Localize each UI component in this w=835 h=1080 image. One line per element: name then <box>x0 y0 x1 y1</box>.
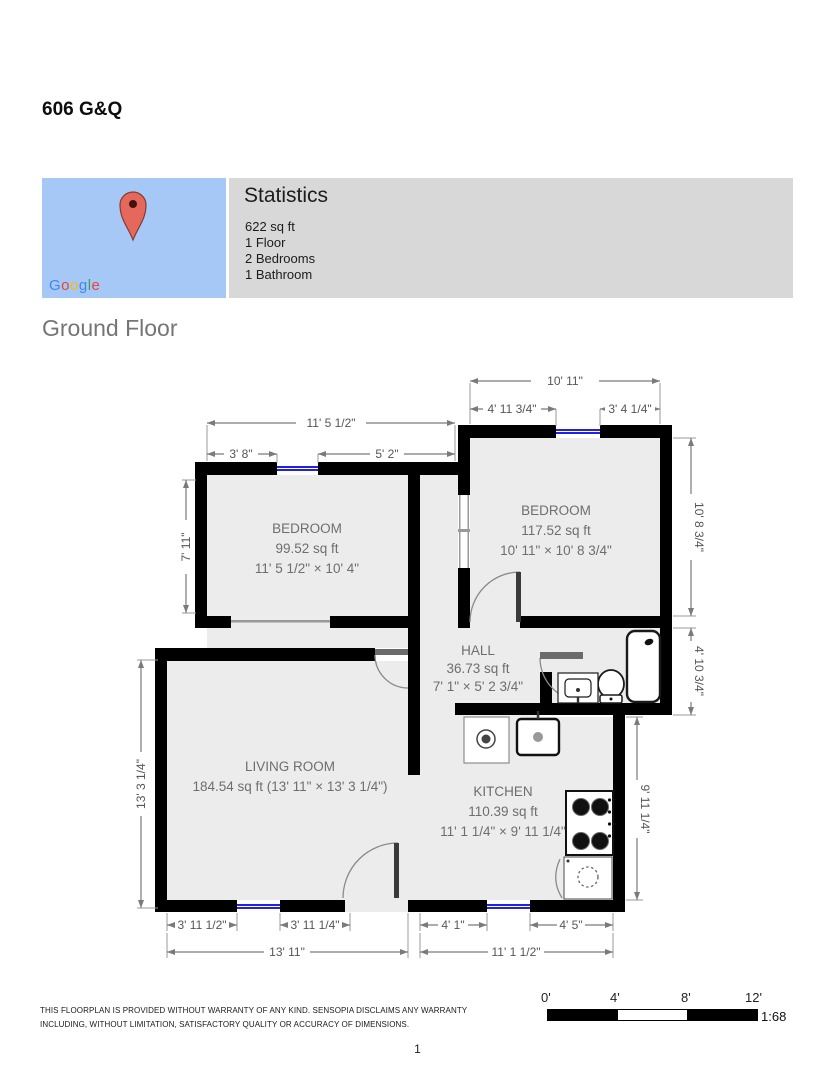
page-title: 606 G&Q <box>42 99 122 121</box>
room-label-kitchen-dims: 11' 1 1/4" × 9' 11 1/4" <box>440 824 566 839</box>
entrance-door-leaf <box>394 843 399 898</box>
room-label-living-name: LIVING ROOM <box>245 759 335 774</box>
room-label-hall-area: 36.73 sq ft <box>446 661 509 676</box>
dim-rb-height: 10' 8 3/4" <box>692 502 706 552</box>
dim-living-bottom-right: 3' 11 1/4" <box>290 918 339 932</box>
dim-living-width: 13' 11" <box>269 945 305 959</box>
floor-heading: Ground Floor <box>42 315 178 342</box>
google-letter: e <box>92 277 101 294</box>
room-label-bedroom-left-dims: 11' 5 1/2" × 10' 4" <box>255 561 359 576</box>
wall-segment <box>613 715 625 912</box>
wall-segment <box>455 703 672 715</box>
appliance-drum <box>578 867 598 887</box>
floorplan-drawing: 10' 11" 4' 11 3/4" 3' 4 1/4" 11' 5 1/2" … <box>130 370 710 970</box>
stat-floors: 1 Floor <box>245 235 285 250</box>
floorplan-page: 606 G&Q Google Statistics 622 sq ft 1 Fl… <box>0 0 835 1080</box>
dim-living-height: 13' 3 1/4" <box>134 759 148 809</box>
map-thumbnail[interactable]: Google <box>42 178 226 298</box>
wall-segment <box>520 616 660 628</box>
wall-segment <box>330 616 408 628</box>
dim-kitchen-width: 11' 1 1/2" <box>491 945 540 959</box>
scale-label-4: 4' <box>610 990 620 1005</box>
room-label-hall-dims: 7' 1" × 5' 2 3/4" <box>433 679 523 694</box>
kitchen-sink-drain <box>533 732 543 742</box>
dim-bath-height: 4' 10 3/4" <box>692 646 706 696</box>
window-marker <box>556 425 600 438</box>
scale-bar-graphic <box>547 1009 758 1021</box>
google-letter: o <box>70 277 79 294</box>
stove-burner <box>573 833 590 850</box>
wall-segment <box>408 462 420 648</box>
entrance-opening <box>345 900 408 912</box>
window-marker <box>237 900 280 912</box>
stove-knob <box>608 834 611 837</box>
scale-label-0: 0' <box>541 990 551 1005</box>
appliance-dot <box>567 860 570 863</box>
map-pin-dot <box>129 200 137 208</box>
statistics-panel: Statistics 622 sq ft 1 Floor 2 Bedrooms … <box>229 178 793 298</box>
stove-burner <box>592 833 609 850</box>
bathroom-door-leaf <box>540 652 583 659</box>
google-letter: g <box>79 277 88 294</box>
dim-rb-left-seg: 4' 11 3/4" <box>487 402 536 416</box>
wall-segment <box>408 648 420 775</box>
sink-faucet <box>577 697 579 703</box>
scale-ratio: 1:68 <box>761 1009 786 1024</box>
wall-segment <box>458 568 470 616</box>
room-label-bedroom-left-area: 99.52 sq ft <box>275 541 338 556</box>
wall-segment <box>458 616 470 628</box>
map-pin-icon <box>120 192 146 240</box>
kitchen-sink-faucet <box>537 711 539 719</box>
scale-label-8: 8' <box>681 990 691 1005</box>
room-label-kitchen-name: KITCHEN <box>473 784 532 799</box>
stove-knob <box>608 810 611 813</box>
statistics-heading: Statistics <box>244 184 328 208</box>
dim-lb-right-seg: 5' 2" <box>375 447 398 461</box>
wall-segment <box>660 425 672 715</box>
scale-segment-white <box>618 1010 688 1020</box>
window-marker <box>277 462 318 475</box>
disclaimer-line-1: THIS FLOORPLAN IS PROVIDED WITHOUT WARRA… <box>40 1006 480 1015</box>
bathtub-icon <box>627 631 660 702</box>
room-label-bedroom-right-dims: 10' 11" × 10' 8 3/4" <box>500 543 612 558</box>
stat-bathrooms: 1 Bathroom <box>245 267 312 282</box>
dim-lb-left-seg: 3' 8" <box>229 447 252 461</box>
closet-opening-line <box>231 620 330 623</box>
dim-living-bottom-left: 3' 11 1/2" <box>177 918 226 932</box>
nook-door-tick <box>458 529 470 532</box>
wall-segment <box>155 648 167 912</box>
google-letter: o <box>61 277 70 294</box>
stove-knob <box>608 822 611 825</box>
dim-lb-height: 7' 11" <box>179 532 193 561</box>
window-marker <box>487 900 530 912</box>
dim-kitchen-bottom-right: 4' 5" <box>559 918 582 932</box>
toilet-dot <box>610 698 613 701</box>
stat-area: 622 sq ft <box>245 219 295 234</box>
room-label-bedroom-right-area: 117.52 sq ft <box>521 523 591 538</box>
wall-segment <box>540 672 552 703</box>
stat-bedrooms: 2 Bedrooms <box>245 251 315 266</box>
statistics-box: Google Statistics 622 sq ft 1 Floor 2 Be… <box>42 178 793 298</box>
dim-kitchen-height: 9' 11 1/4" <box>638 784 652 833</box>
washer-drum <box>482 735 491 744</box>
scale-label-12: 12' <box>745 990 762 1005</box>
closet-nook-floor <box>420 475 458 628</box>
scale-segment-black <box>687 1010 757 1020</box>
google-logo: Google <box>49 277 100 294</box>
google-letter: G <box>49 277 61 294</box>
hall-door-leaf <box>375 649 408 655</box>
room-label-living-area-dims: 184.54 sq ft (13' 11" × 13' 3 1/4") <box>193 779 388 794</box>
wall-segment <box>195 462 207 628</box>
bedroom-right-door-leaf <box>516 572 521 622</box>
dim-lb-width: 11' 5 1/2" <box>306 416 355 430</box>
dim-rb-width: 10' 11" <box>547 374 583 388</box>
bedroom-right-door-opening <box>470 616 520 628</box>
stove-knob <box>608 798 611 801</box>
wall-segment <box>155 648 375 661</box>
stove-burner <box>592 799 609 816</box>
room-label-bedroom-right-name: BEDROOM <box>521 503 591 518</box>
stove-burner <box>573 799 590 816</box>
dim-kitchen-bottom-left: 4' 1" <box>441 918 464 932</box>
bathroom-door-opening <box>540 628 552 672</box>
open-plan-strip <box>408 775 420 900</box>
scale-segment-black <box>548 1010 618 1020</box>
dim-rb-right-seg: 3' 4 1/4" <box>608 402 651 416</box>
sink-drain-dot <box>576 688 580 692</box>
room-label-kitchen-area: 110.39 sq ft <box>468 804 538 819</box>
wall-segment <box>207 616 231 628</box>
room-label-bedroom-left-name: BEDROOM <box>272 521 342 536</box>
disclaimer-line-2: INCLUDING, WITHOUT LIMITATION, SATISFACT… <box>40 1020 480 1029</box>
room-label-hall-name: HALL <box>461 643 495 658</box>
page-number: 1 <box>0 1042 835 1056</box>
wall-segment <box>458 438 470 495</box>
toilet-icon <box>598 670 624 698</box>
